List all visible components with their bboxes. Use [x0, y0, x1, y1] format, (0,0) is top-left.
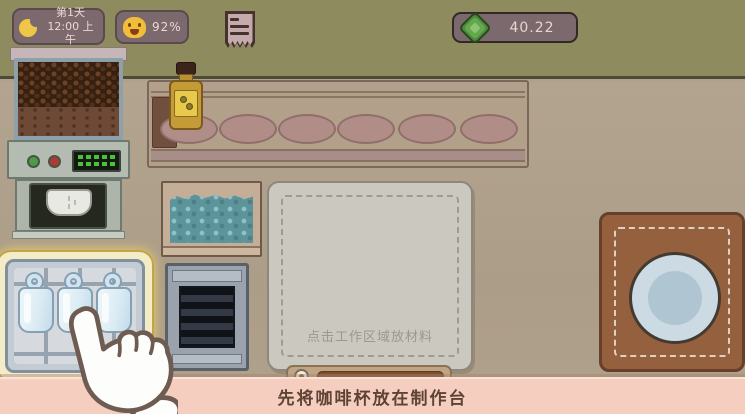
money-badge: 40.22: [452, 12, 578, 43]
machine-control-panel: [7, 140, 130, 179]
shelf-pad[interactable]: [219, 114, 277, 144]
work-area-hint: 点击工作区域放材料: [269, 326, 471, 345]
shelf-rail: [151, 91, 525, 93]
shelf-bottom-board: [151, 149, 525, 162]
bottle-label: [174, 90, 198, 117]
work-area[interactable]: 点击工作区域放材料: [267, 181, 473, 371]
coffee-cup[interactable]: [18, 274, 54, 334]
receipt-icon[interactable]: [225, 11, 255, 48]
ice-container-base: [163, 246, 260, 255]
money-value: 40.22: [496, 20, 568, 36]
machine-green-button[interactable]: [27, 155, 40, 168]
machine-cup: [46, 189, 92, 216]
ice-cubes: [170, 193, 253, 243]
pointing-hand-cursor: [52, 305, 178, 414]
day-label: 第1天: [42, 6, 99, 20]
machine-base: [12, 231, 125, 239]
shelf-rail: [151, 96, 525, 98]
mood-value: 92%: [152, 20, 182, 34]
cash-icon: [458, 11, 492, 45]
ice-container[interactable]: [161, 181, 262, 257]
day-time-badge: 第1天 12:00 上午: [12, 8, 105, 45]
bean-hopper: [14, 58, 123, 140]
vent-top-lip: [172, 270, 242, 282]
moon-icon: [18, 14, 42, 40]
vent-bottom-lip: [172, 354, 242, 364]
vent-slats: [179, 286, 235, 348]
brew-alcove: [29, 183, 107, 229]
machine-red-button[interactable]: [48, 155, 61, 168]
plate[interactable]: [629, 252, 721, 344]
coffee-grounds: [18, 107, 119, 136]
shelf-pad[interactable]: [398, 114, 456, 144]
shelf-pad[interactable]: [460, 114, 518, 144]
coffee-beans: [18, 62, 119, 107]
mood-badge: 92%: [115, 10, 189, 44]
bottle-body: [169, 80, 203, 130]
tutorial-text: 先将咖啡杯放在制作台: [278, 384, 468, 409]
time-label: 12:00 上午: [42, 20, 99, 48]
shelf-pad[interactable]: [278, 114, 336, 144]
machine-display: [72, 150, 121, 172]
syrup-bottle[interactable]: [167, 62, 205, 132]
serving-mat[interactable]: [599, 212, 745, 372]
smiley-face-icon: [123, 17, 146, 38]
shelf-pad[interactable]: [337, 114, 395, 144]
game-scene: 点击工作区域放材料 第1天 12:00 上午: [0, 0, 745, 414]
machine-body: [15, 179, 122, 232]
